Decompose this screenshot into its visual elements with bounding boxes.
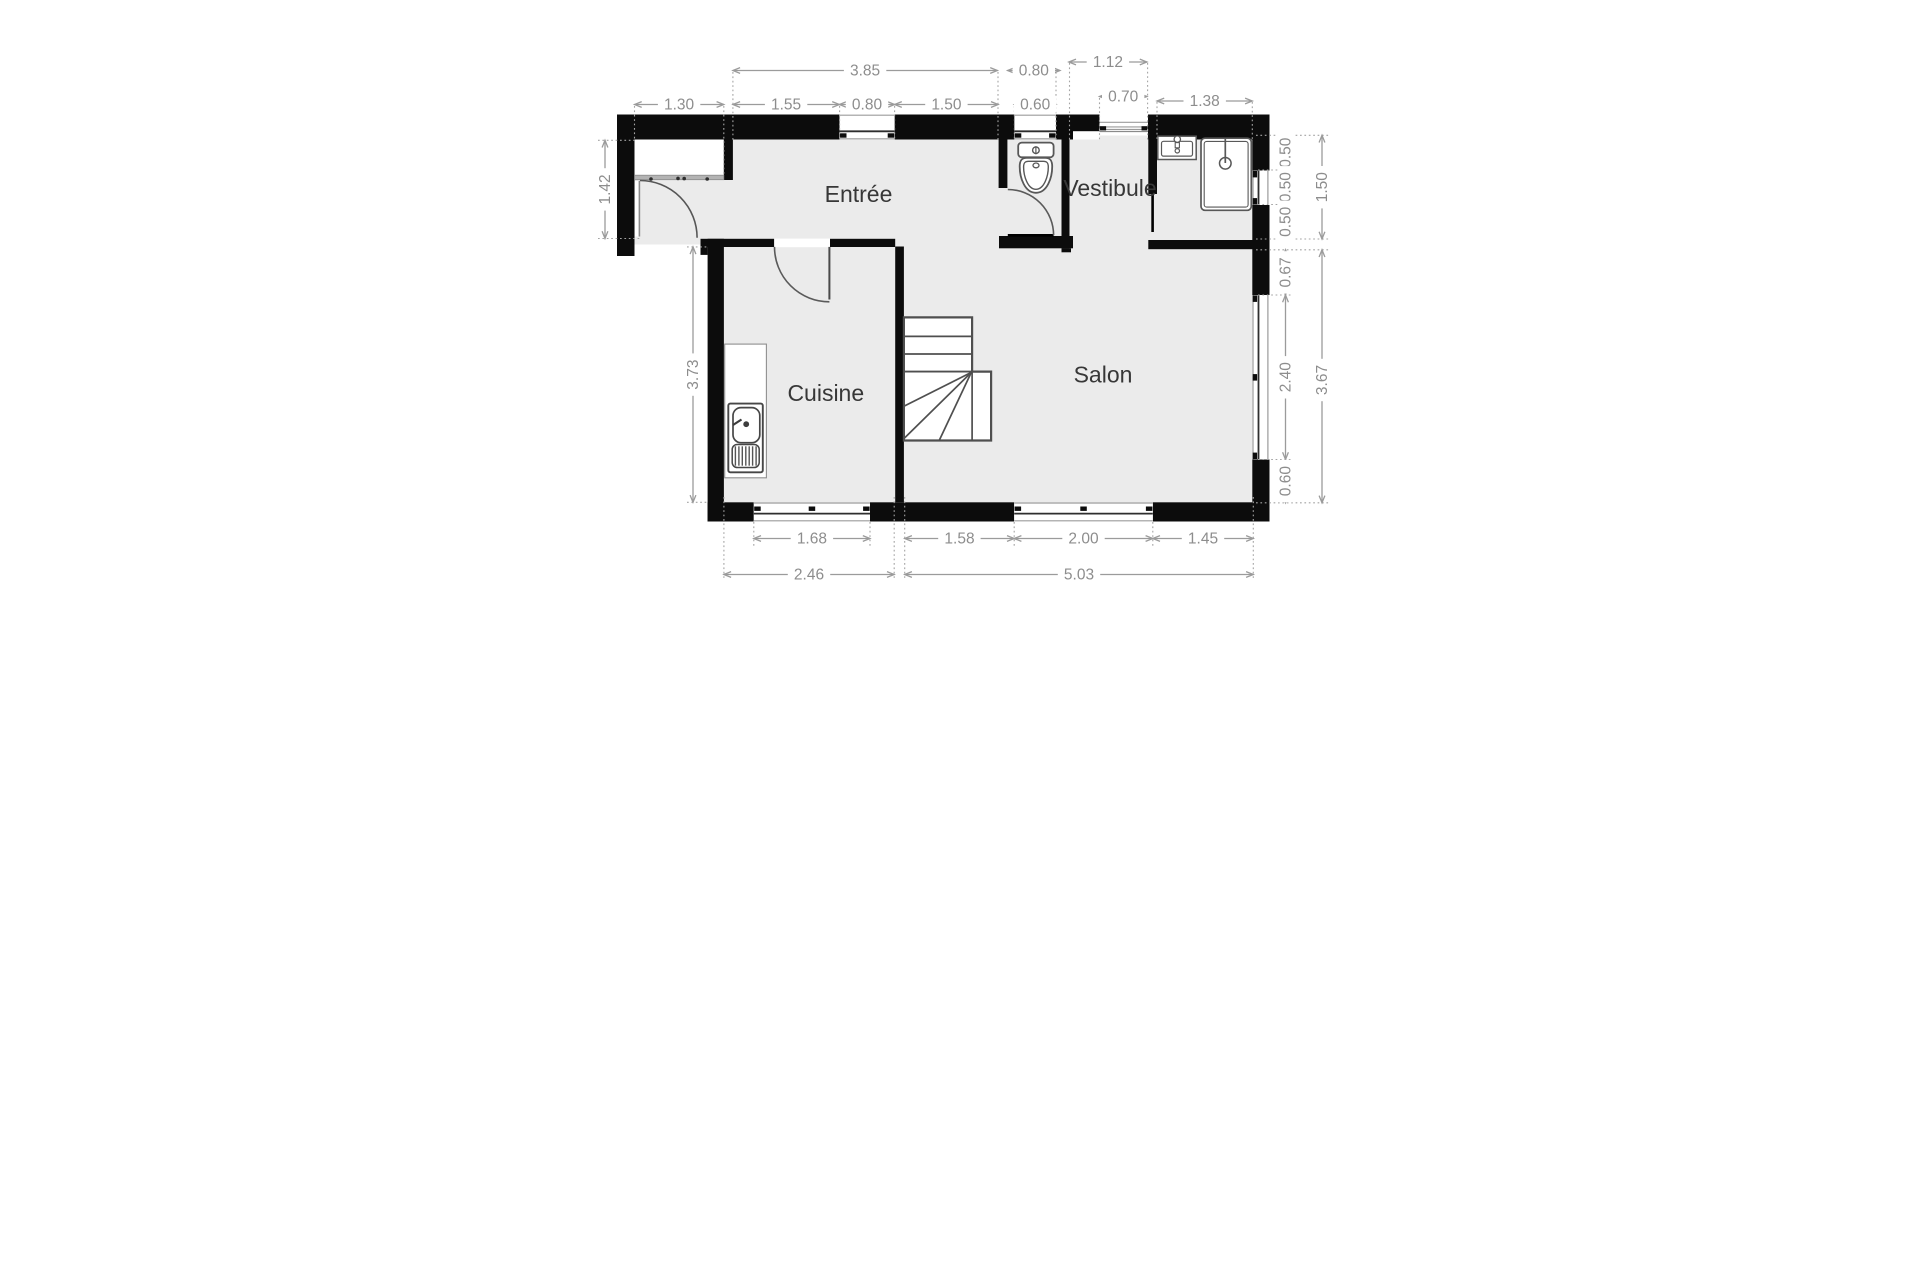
svg-text:0.60: 0.60 <box>1020 97 1051 114</box>
svg-text:2.46: 2.46 <box>794 567 824 584</box>
svg-text:1.42: 1.42 <box>597 174 614 204</box>
svg-text:1.50: 1.50 <box>1314 172 1331 203</box>
svg-text:1.58: 1.58 <box>944 531 974 548</box>
svg-text:1.45: 1.45 <box>1188 531 1218 548</box>
svg-text:Entrée: Entrée <box>825 181 893 207</box>
svg-text:0.80: 0.80 <box>1019 63 1050 80</box>
svg-text:1.50: 1.50 <box>931 97 962 114</box>
svg-text:1.68: 1.68 <box>797 531 827 548</box>
svg-text:0.70: 0.70 <box>1108 89 1139 106</box>
svg-text:0.50: 0.50 <box>1278 172 1295 203</box>
svg-text:3.73: 3.73 <box>685 360 702 390</box>
svg-text:Vestibule: Vestibule <box>1063 175 1156 201</box>
svg-text:1.55: 1.55 <box>771 97 801 114</box>
svg-text:Salon: Salon <box>1074 362 1133 388</box>
svg-text:1.12: 1.12 <box>1093 54 1123 71</box>
svg-text:0.80: 0.80 <box>852 97 883 114</box>
svg-text:3.67: 3.67 <box>1314 365 1331 395</box>
svg-text:0.50: 0.50 <box>1278 137 1295 168</box>
svg-text:1.30: 1.30 <box>664 97 695 114</box>
svg-text:3.85: 3.85 <box>850 63 880 80</box>
svg-text:0.60: 0.60 <box>1278 466 1295 497</box>
svg-text:0.67: 0.67 <box>1278 257 1295 287</box>
svg-text:0.50: 0.50 <box>1278 206 1295 237</box>
svg-text:1.38: 1.38 <box>1190 93 1220 110</box>
svg-text:5.03: 5.03 <box>1064 567 1094 584</box>
svg-text:Cuisine: Cuisine <box>787 380 864 406</box>
svg-text:2.40: 2.40 <box>1278 362 1295 393</box>
svg-text:2.00: 2.00 <box>1068 531 1099 548</box>
